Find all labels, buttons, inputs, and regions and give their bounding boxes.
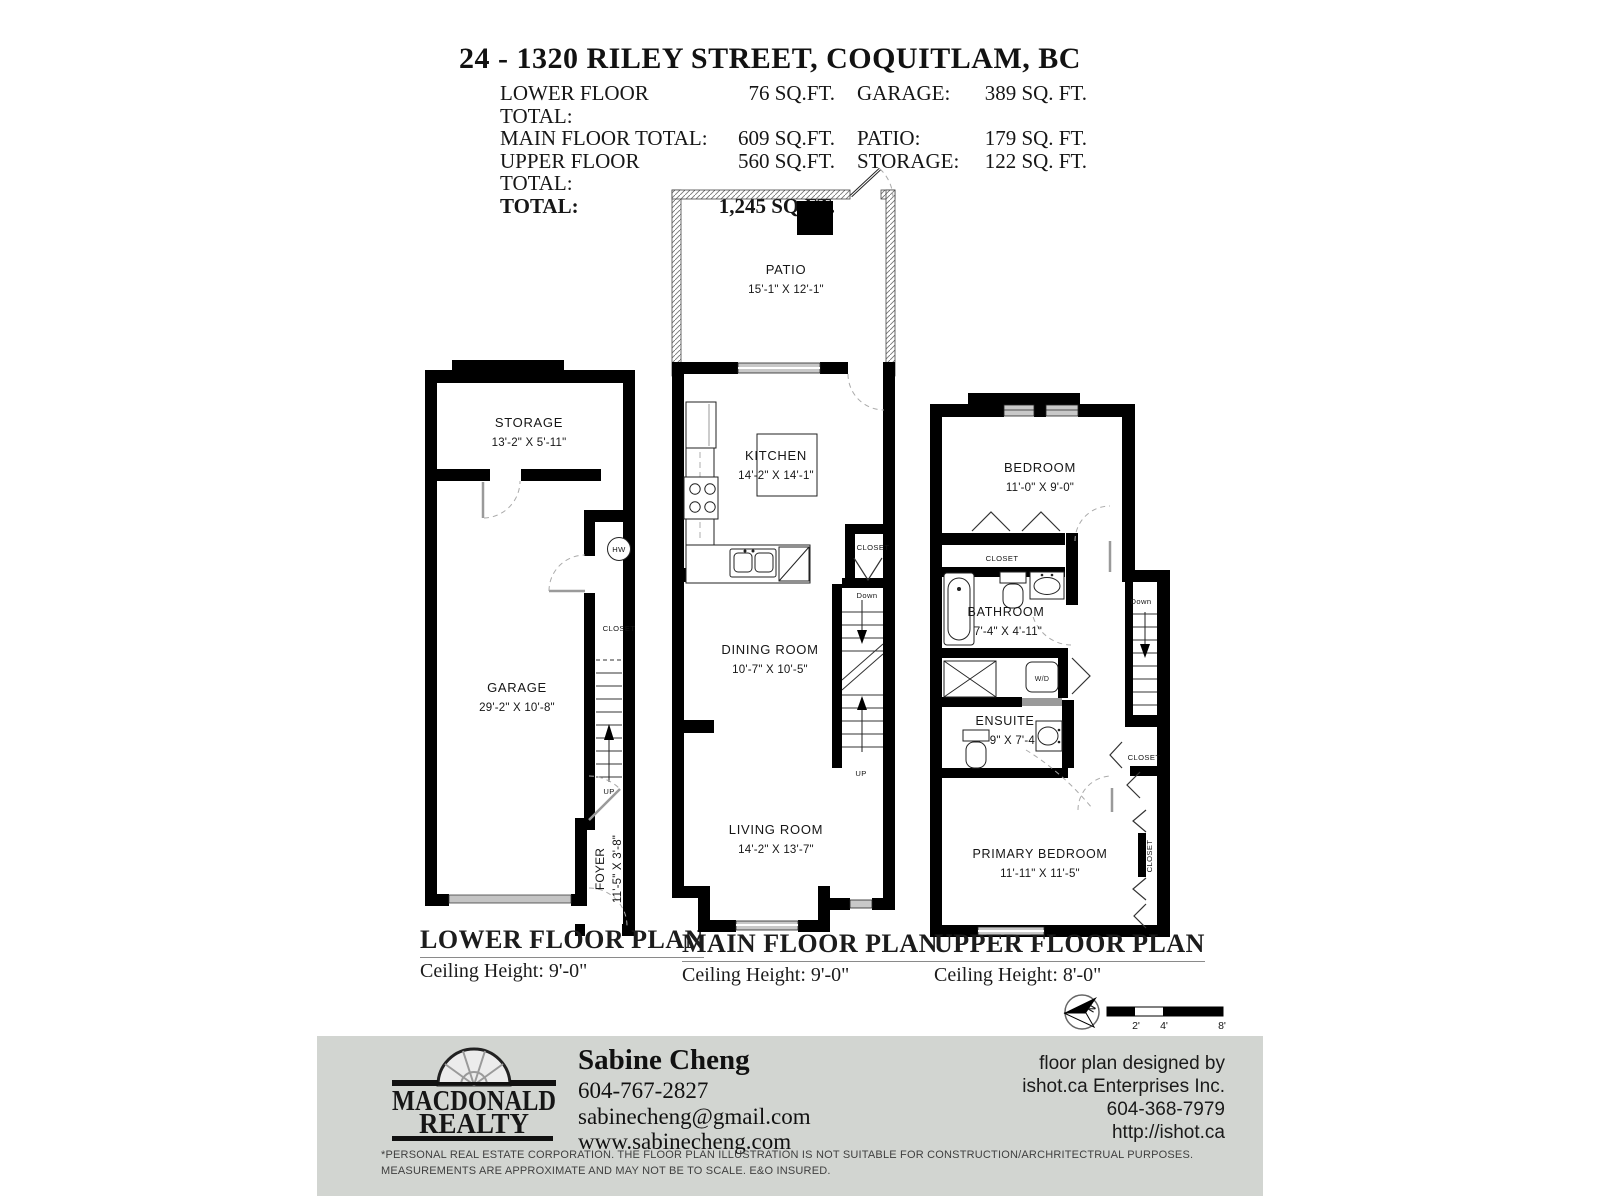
agent-phone: 604-767-2827 [578, 1078, 811, 1104]
logo-arch-icon [392, 1049, 556, 1086]
wd-label: W/D [1035, 676, 1050, 683]
agent-email: sabinecheng@gmail.com [578, 1104, 811, 1130]
closet-bifold-icon [854, 558, 882, 580]
bedroom-closet-label: CLOSET [986, 554, 1019, 563]
upper-plan-title: UPPER FLOOR PLAN [934, 929, 1205, 962]
bathroom-label: BATHROOM [968, 605, 1045, 619]
hw-label: HW [612, 545, 626, 554]
summary-value: 76 SQ.FT. [712, 82, 835, 127]
summary-value: 389 SQ. FT. [982, 82, 1087, 127]
summary-label: MAIN FLOOR TOTAL: [500, 127, 712, 150]
patio-post [797, 201, 833, 235]
logo-name-bottom: REALTY [419, 1109, 529, 1140]
macdonald-realty-logo: MACDONALD REALTY [383, 1042, 563, 1142]
closet-bifold-icon [972, 512, 1010, 531]
logo-rule [392, 1136, 553, 1141]
lower-floor-plan: HW STORAGE 13'-2" X 5'-11" GARAGE 29'-2"… [415, 355, 650, 955]
lower-plan-ceiling: Ceiling Height: 9'-0" [420, 960, 704, 983]
up-arrow-icon [604, 724, 614, 740]
main-plan-title-block: MAIN FLOOR PLAN Ceiling Height: 9'-0" [682, 929, 938, 987]
upper-stairs: Down [1130, 597, 1157, 705]
agent-block: Sabine Cheng 604-767-2827 sabinecheng@gm… [578, 1042, 811, 1155]
kitchen-entry-swing [848, 374, 884, 410]
bedroom-dims: 11'-0" X 9'-0" [1006, 482, 1074, 494]
north-label: N [1086, 1004, 1098, 1015]
patio-label: PATIO [766, 262, 807, 277]
living-dims: 14'-2" X 13'-7" [738, 844, 814, 856]
door-chevron-icon [1072, 658, 1090, 694]
summary-label: PATIO: [857, 127, 982, 150]
up-arrow-icon [857, 696, 867, 710]
designer-block: floor plan designed by ishot.ca Enterpri… [1022, 1052, 1225, 1144]
summary-value: 179 SQ. FT. [982, 127, 1087, 150]
primary-door-swing [1026, 750, 1092, 808]
upper-floor-plan: BEDROOM 11'-0" X 9'-0" CLOSET BATHROOM 7… [925, 385, 1175, 995]
designer-line: ishot.ca Enterprises Inc. [1022, 1075, 1225, 1098]
bathroom-dims: 7'-4" X 4'-11" [974, 626, 1042, 638]
lower-stairs [596, 660, 622, 782]
down-arrow-icon [857, 630, 867, 644]
kitchen-island [757, 434, 817, 496]
main-floor-plan: PATIO 15'-1" X 12'-1" [665, 160, 905, 935]
compass-and-scale: N 2' 4' 8' [1030, 975, 1240, 1035]
storage-room-dims: 13'-2" X 5'-11" [492, 437, 567, 449]
main-closet-label: CLOSET [857, 543, 890, 552]
main-stairs [842, 600, 883, 752]
scale-tick: 8' [1218, 1020, 1226, 1032]
page-title: 24 - 1320 RILEY STREET, COQUITLAM, BC [400, 42, 1140, 76]
main-plan-title: MAIN FLOOR PLAN [682, 929, 938, 962]
garage-room-label: GARAGE [487, 680, 547, 695]
ensuite-label: ENSUITE [975, 714, 1034, 728]
primary-bedroom-dims: 11'-11" X 11'-5" [1000, 868, 1080, 880]
bedroom-label: BEDROOM [1004, 460, 1076, 475]
patio-dims: 15'-1" X 12'-1" [748, 284, 824, 296]
kitchen-sink [730, 549, 776, 577]
ensuite-toilet [963, 730, 989, 741]
main-plan-ceiling: Ceiling Height: 9'-0" [682, 964, 938, 987]
dining-label: DINING ROOM [721, 642, 818, 657]
kitchen-fixtures [684, 402, 817, 583]
bedroom-door [1075, 506, 1110, 572]
disclaimer: *PERSONAL REAL ESTATE CORPORATION. THE F… [381, 1147, 1193, 1179]
down-arrow-icon [1140, 644, 1150, 658]
floor-plan-sheet: 24 - 1320 RILEY STREET, COQUITLAM, BC LO… [0, 0, 1600, 1200]
lower-plan-title: LOWER FLOOR PLAN [420, 925, 704, 958]
dining-dims: 10'-7" X 10'-5" [732, 664, 808, 676]
scale-bar: 2' 4' 8' [1107, 1007, 1226, 1032]
designer-line: 604-368-7979 [1022, 1098, 1225, 1121]
foyer-room-dims: 11'-5" X 3'-8" [612, 835, 624, 903]
main-up-label: UP [855, 769, 866, 778]
upper-down-label: Down [1130, 597, 1151, 606]
primary-bedroom-door [1078, 776, 1112, 812]
kitchen-dims: 14'-2" X 14'-1" [738, 470, 814, 482]
closet-bifold-icon [1022, 512, 1060, 531]
summary-label: LOWER FLOOR TOTAL: [500, 82, 712, 127]
designer-line: floor plan designed by [1022, 1052, 1225, 1075]
pocket-door [1022, 698, 1062, 706]
summary-value: 122 SQ. FT. [982, 150, 1087, 195]
disclaimer-line: MEASUREMENTS ARE APPROXIMATE AND MAY NOT… [381, 1163, 1193, 1179]
closet-bifold-icon [1110, 742, 1122, 768]
scale-tick: 4' [1160, 1020, 1168, 1032]
closet-bifold-icon [1133, 810, 1146, 832]
summary-label: GARAGE: [857, 82, 982, 127]
lower-closet-label: CLOSET [603, 624, 636, 633]
up-label: UP [603, 787, 614, 796]
compass-icon: N [1064, 995, 1099, 1029]
living-label: LIVING ROOM [729, 822, 823, 837]
main-down-label: Down [856, 591, 877, 600]
garage-room-dims: 29'-2" X 10'-8" [479, 702, 555, 714]
storage-room-label: STORAGE [495, 415, 563, 430]
disclaimer-line: *PERSONAL REAL ESTATE CORPORATION. THE F… [381, 1147, 1193, 1163]
lower-plan-title-block: LOWER FLOOR PLAN Ceiling Height: 9'-0" [420, 925, 704, 983]
summary-value: 609 SQ.FT. [712, 127, 835, 150]
foyer-room-label: FOYER [593, 848, 607, 890]
primary-bedroom-label: PRIMARY BEDROOM [972, 847, 1107, 861]
hot-water-tank: HW [608, 538, 631, 561]
kitchen-label: KITCHEN [745, 448, 807, 463]
closet-bifold-icon [1134, 904, 1146, 928]
hall-closet-label: CLOSET [1128, 753, 1161, 762]
agent-name: Sabine Cheng [578, 1042, 811, 1078]
patio-walls [672, 190, 895, 376]
primary-closet-label: CLOSET [1145, 840, 1154, 873]
stove [684, 477, 718, 519]
designer-line: http://ishot.ca [1022, 1121, 1225, 1144]
garage-door [449, 895, 571, 903]
closet-bifold-icon [1133, 878, 1146, 900]
footer-band: MACDONALD REALTY Sabine Cheng 604-767-28… [317, 1036, 1263, 1196]
toilet [1000, 572, 1026, 583]
scale-tick: 2' [1132, 1020, 1140, 1032]
